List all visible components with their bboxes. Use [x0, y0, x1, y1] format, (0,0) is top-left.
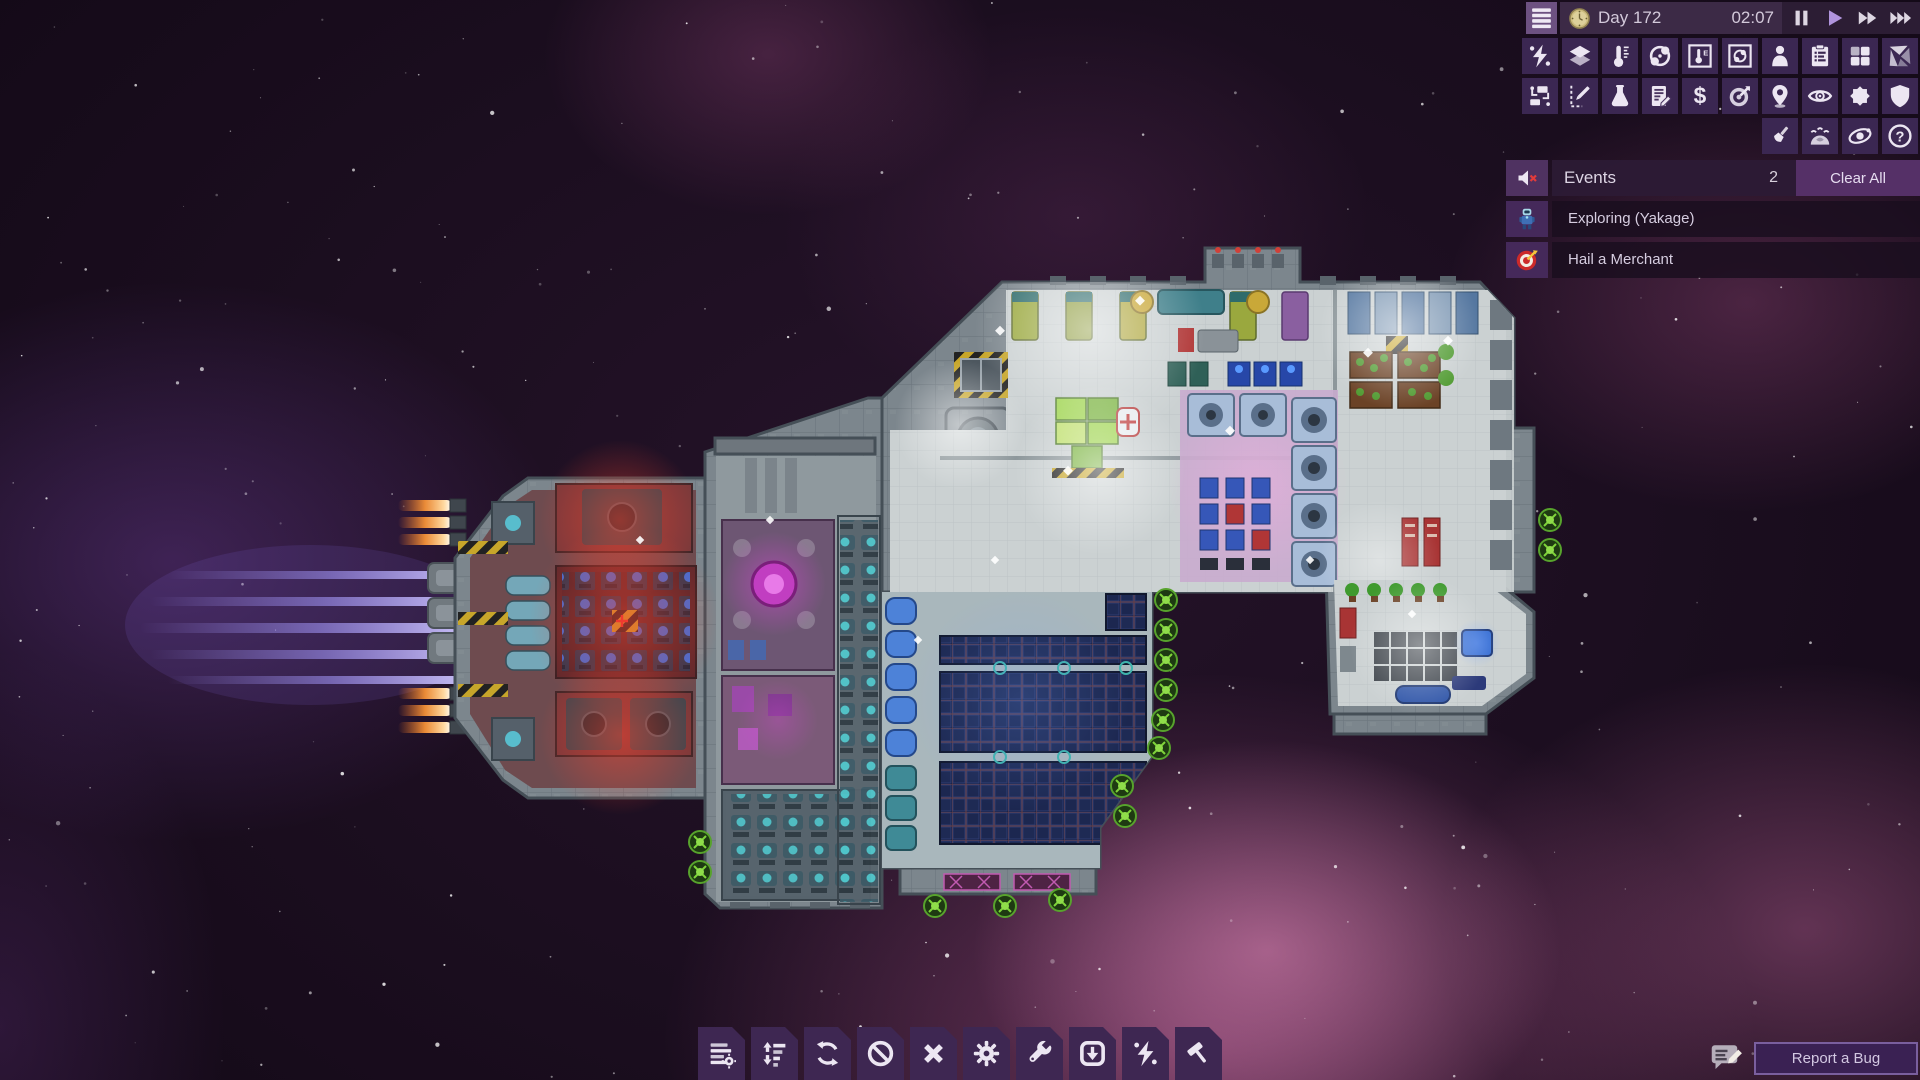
- overlay-toolbar-row-2: $: [1522, 78, 1918, 114]
- event-label: Hail a Merchant: [1552, 242, 1920, 278]
- help-icon: ?: [1887, 123, 1913, 149]
- navigation-button[interactable]: [1762, 78, 1798, 114]
- overlay-toolbar-row-3: ?: [1522, 118, 1918, 154]
- burst-icon: [1847, 83, 1873, 109]
- bottom-toolbar: [698, 1027, 1222, 1080]
- cancel-icon: [919, 1036, 948, 1071]
- menu-icon: [1529, 18, 1554, 33]
- time-bar: Day 172 02:07: [1560, 2, 1920, 34]
- lounge-section[interactable]: [1334, 575, 1526, 715]
- report-a-bug-button[interactable]: Report a Bug: [1754, 1042, 1918, 1075]
- fff-icon: [1887, 7, 1914, 29]
- wrench-icon: [1025, 1036, 1054, 1071]
- operations-button[interactable]: [963, 1027, 1010, 1080]
- tiles-icon: [1567, 43, 1593, 69]
- pause-icon: [1788, 7, 1815, 29]
- gas-box-icon: [1727, 43, 1753, 69]
- events-list: Exploring (Yakage)Hail a Merchant: [1506, 201, 1920, 278]
- date-time-section: Day 172 02:07: [1560, 2, 1782, 34]
- day-label: Day 172: [1598, 8, 1661, 28]
- events-title: Events: [1564, 168, 1616, 188]
- speaker-muted-icon: [1512, 166, 1542, 190]
- pause-button[interactable]: [1786, 5, 1817, 31]
- power-icon: [1131, 1036, 1160, 1071]
- flask-icon: [1607, 83, 1633, 109]
- mid-section[interactable]: [716, 456, 880, 904]
- thermometer-icon: [1607, 43, 1633, 69]
- pin-icon: [1767, 83, 1793, 109]
- explorer-icon: [1506, 201, 1548, 237]
- cancel-button[interactable]: [910, 1027, 957, 1080]
- contracts-button[interactable]: [1642, 78, 1678, 114]
- shield-icon: [1887, 83, 1913, 109]
- forbid-button[interactable]: [857, 1027, 904, 1080]
- main-menu-button[interactable]: [1526, 2, 1557, 34]
- rotate-button[interactable]: [804, 1027, 851, 1080]
- power-management-button[interactable]: [1122, 1027, 1169, 1080]
- research-button[interactable]: [1602, 78, 1638, 114]
- fastest-forward-button[interactable]: [1885, 5, 1916, 31]
- draw-icon: [1567, 83, 1593, 109]
- clipboard-icon: [1807, 43, 1833, 69]
- repair-button[interactable]: [1016, 1027, 1063, 1080]
- customize-button[interactable]: [1762, 118, 1798, 154]
- temperature-overlay-button[interactable]: [1602, 38, 1638, 74]
- target-event-icon: [1506, 242, 1548, 278]
- bug-report-bar: Report a Bug: [1706, 1040, 1918, 1076]
- events-title-strip: Events 2: [1552, 160, 1796, 196]
- clear-all-button[interactable]: Clear All: [1796, 160, 1920, 196]
- overlay-toolbar-row-1: E: [1522, 38, 1918, 74]
- thermo-box-icon: E: [1687, 43, 1713, 69]
- priorities-icon: [760, 1036, 789, 1071]
- dollar-icon: $: [1687, 83, 1713, 109]
- grid4-icon: [1847, 43, 1873, 69]
- logistics-icon: [1527, 83, 1553, 109]
- gas-icon: [1647, 43, 1673, 69]
- svg-text:?: ?: [1896, 129, 1905, 145]
- priorities-button[interactable]: [751, 1027, 798, 1080]
- events-panel: Events 2 Clear All Exploring (Yakage)Hai…: [1506, 160, 1920, 283]
- temperature-detail-button[interactable]: E: [1682, 38, 1718, 74]
- manage-icon: [707, 1036, 736, 1071]
- mute-events-button[interactable]: [1506, 160, 1548, 196]
- trade-button[interactable]: $: [1682, 78, 1718, 114]
- time-label: 02:07: [1731, 8, 1774, 28]
- gear-icon: [972, 1036, 1001, 1071]
- system-icon: [1847, 123, 1873, 149]
- crew-list-button[interactable]: [1802, 38, 1838, 74]
- fast-forward-button[interactable]: [1852, 5, 1883, 31]
- visibility-button[interactable]: [1802, 78, 1838, 114]
- power-overlay-button[interactable]: [1522, 38, 1558, 74]
- brush-icon: [1767, 123, 1793, 149]
- engine-section[interactable]: [458, 440, 720, 815]
- event-label: Exploring (Yakage): [1552, 201, 1920, 237]
- rooms-button[interactable]: [1842, 38, 1878, 74]
- gas-overlay-button[interactable]: [1642, 38, 1678, 74]
- ff-icon: [1854, 7, 1881, 29]
- hibernation-button[interactable]: [1802, 118, 1838, 154]
- contract-icon: [1647, 83, 1673, 109]
- svg-text:E: E: [1703, 48, 1708, 57]
- solar-section[interactable]: [882, 590, 1152, 890]
- person-icon: [1767, 43, 1793, 69]
- logistics-button[interactable]: [1522, 78, 1558, 114]
- game-viewport[interactable]: Day 172 02:07 E $ ? Events 2 Clear All E…: [0, 0, 1920, 1080]
- shields-button[interactable]: [1882, 78, 1918, 114]
- overlay-toolbar: E $ ?: [1522, 38, 1918, 158]
- crew-button[interactable]: [1762, 38, 1798, 74]
- bug-report-icon: [1706, 1040, 1746, 1076]
- build-button[interactable]: [1175, 1027, 1222, 1080]
- events-count: 2: [1769, 169, 1784, 187]
- play-icon: [1821, 7, 1848, 29]
- deploy-button[interactable]: [1069, 1027, 1116, 1080]
- events-header: Events 2 Clear All: [1506, 160, 1920, 196]
- build-icon: [1184, 1036, 1213, 1071]
- missions-icon: [1727, 83, 1753, 109]
- system-view-button[interactable]: [1842, 118, 1878, 154]
- dome-icon: [1807, 123, 1833, 149]
- play-button[interactable]: [1819, 5, 1850, 31]
- floor-overlay-button[interactable]: [1562, 38, 1598, 74]
- deploy-icon: [1078, 1036, 1107, 1071]
- forbid-icon: [866, 1036, 895, 1071]
- playback-controls: [1782, 2, 1920, 34]
- missions-button[interactable]: [1722, 78, 1758, 114]
- gas-detail-button[interactable]: [1722, 38, 1758, 74]
- hull-sections-button[interactable]: [1882, 38, 1918, 74]
- combat-button[interactable]: [1842, 78, 1878, 114]
- svg-text:$: $: [1694, 83, 1707, 109]
- event-row[interactable]: Hail a Merchant: [1506, 242, 1920, 278]
- manage-lists-button[interactable]: [698, 1027, 745, 1080]
- rotate-icon: [813, 1036, 842, 1071]
- event-row[interactable]: Exploring (Yakage): [1506, 201, 1920, 237]
- hull-split-icon: [1887, 43, 1913, 69]
- clock-icon: [1568, 7, 1591, 30]
- draw-mode-button[interactable]: [1562, 78, 1598, 114]
- eye-icon: [1807, 83, 1833, 109]
- power-icon: [1527, 43, 1553, 69]
- help-button[interactable]: ?: [1882, 118, 1918, 154]
